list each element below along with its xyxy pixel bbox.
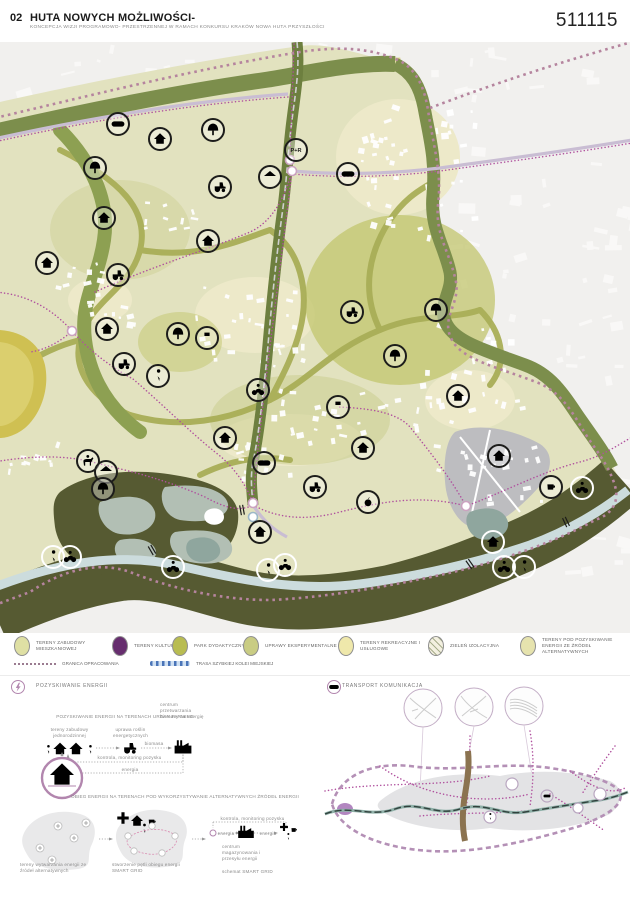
map-icon-house: [149, 128, 171, 150]
map-icon-house: [93, 207, 115, 229]
map-icon-house: [96, 318, 118, 340]
map-icon-house: [214, 427, 236, 449]
map-icon-tractor: [304, 476, 326, 498]
map-icon-gazebo: [259, 166, 281, 188]
legend-swatch: [14, 636, 30, 656]
map-icon-tractor: [341, 301, 363, 323]
legend-item: TERENY ZABUDOWY MIESZKANIOWEJ: [14, 636, 114, 656]
map-icon-house: [36, 252, 58, 274]
transport-section-icon: [328, 681, 341, 694]
legend-item: UPRAWY EKSPERYMENTALNE: [243, 636, 337, 656]
legend-item: TERENY POD POZYSKIWANIE ENERGII ZE ŹRÓDE…: [520, 636, 620, 656]
map-icon-tractor: [209, 176, 231, 198]
legend-swatch: [243, 636, 259, 656]
urban-farming-emblem: [42, 758, 82, 798]
map-icon-park-and-ride: P+R: [285, 139, 307, 161]
map-icon-house: [249, 521, 271, 543]
route-node: [68, 327, 77, 336]
grid-energy-in-label: energia: [210, 831, 242, 837]
map-svg: P+R: [0, 42, 630, 633]
map-icon-tree: [167, 323, 189, 345]
farming-node1-label: tereny zabudowy jednorodzinnej: [42, 727, 97, 739]
boundary-line-symbol: [14, 663, 56, 665]
energy-section-icon: [12, 681, 25, 694]
legend-swatch: [428, 636, 444, 656]
competition-board: 02 HUTA NOWYCH MOŻLIWOŚCI- KONCEPCJA WIZ…: [0, 0, 630, 900]
transport-section-title: TRANSPORT KOMUNIKACJA: [342, 683, 423, 690]
bottom-panels: POZYSKIWANIE ENERGII TRANSPORT KOMUNIKAC…: [0, 675, 630, 900]
flow-energy-label: energia: [100, 767, 160, 773]
farming-node2-label: uprawa roślin energetycznych: [103, 727, 158, 739]
map-icon-tree: [84, 157, 106, 179]
board-number: 02: [10, 12, 22, 24]
legend-item: TERENY KULTURY: [112, 636, 178, 656]
grid-energy-out-label: energia: [252, 831, 284, 837]
svg-text:P+R: P+R: [290, 148, 301, 154]
board-subtitle: KONCEPCJA WIZJI PROGRAMOWO- PRZESTRZENNE…: [30, 25, 325, 30]
map-icon-apple: [357, 491, 379, 513]
grid-stage3-label: schemat SMART GRID: [222, 869, 292, 875]
grid-stage1-label: tereny wytwarzania energii ze źródeł alt…: [20, 862, 100, 874]
legend-label: TRASA SZYBKIEJ KOLEI MIEJSKIEJ: [196, 661, 273, 666]
grid-stage2: [116, 810, 187, 868]
map-icon-walk: [147, 365, 169, 387]
grid-title: OBIEG ENERGII NA TERENACH POD WYKORZYSTY…: [60, 794, 310, 800]
map-icon-photo: [327, 396, 349, 418]
map-icon-tree: [384, 345, 406, 367]
map-icon-bus: [337, 163, 359, 185]
legend-swatch: [338, 636, 354, 656]
legend-swatch: [112, 636, 128, 656]
map-icon-house: [352, 437, 374, 459]
map-icon-bus: [253, 452, 275, 474]
entry-code: 511115: [556, 10, 618, 32]
legend-item: ZIELEŃ IZOLACYJNA: [428, 636, 499, 656]
transport-diagram-svg: [320, 676, 630, 900]
legend-swatch: [172, 636, 188, 656]
flow-control-label: kontrola, monitoring pozysku: [82, 755, 177, 761]
white-clearing: [204, 508, 224, 524]
map-icon-house: [197, 230, 219, 252]
transport-map: [325, 731, 628, 851]
route-node: [249, 513, 258, 522]
map-icon-tree: [92, 478, 114, 500]
legend-label: PARK DYDAKTYCZNY: [194, 643, 245, 649]
master-plan-map: P+R: [0, 42, 630, 633]
legend-item: TERENY REKREACYJNE I USŁUGOWE: [338, 636, 438, 656]
flow-biomass-label: biomasa: [138, 741, 170, 747]
map-icon-house: [447, 385, 469, 407]
board-title: HUTA NOWYCH MOŻLIWOŚCI-: [30, 12, 195, 24]
rail-line-symbol: [150, 661, 190, 666]
legend-rail-item: TRASA SZYBKIEJ KOLEI MIEJSKIEJ: [150, 661, 273, 666]
route-node: [288, 167, 297, 176]
map-icon-bus: [107, 113, 129, 135]
map-icon-bike: [247, 379, 269, 401]
grid-center-label: centrum magazynowania i przesyłu energii: [222, 844, 274, 862]
map-icon-tree: [425, 299, 447, 321]
map-icon-coffee: [540, 476, 562, 498]
grid-control-label: kontrola, monitoring pozysku: [205, 816, 300, 822]
legend-label: TERENY ZABUDOWY MIESZKANIOWEJ: [36, 640, 114, 651]
grid-stage2-label: stworzenie pętli obiegu energii SMART GR…: [112, 862, 194, 874]
farming-node3-label: centrum przetwarzania biomasy na energię: [160, 702, 206, 720]
legend-swatch: [520, 636, 536, 656]
route-node: [462, 502, 471, 511]
map-icon-house: [488, 445, 510, 467]
legend-label: ZIELEŃ IZOLACYJNA: [450, 643, 499, 649]
legend-label: TERENY REKREACYJNE I USŁUGOWE: [360, 640, 438, 651]
route-node: [249, 499, 258, 508]
bus-icon: [329, 685, 339, 689]
legend-boundary-item: GRANICA OPRACOWANIA: [14, 661, 119, 666]
energy-section-title: POZYSKIWANIE ENERGII: [36, 683, 108, 690]
map-icon-photo: [196, 327, 218, 349]
lightning-icon: [16, 683, 21, 692]
map-icon-tree: [202, 119, 224, 141]
legend-item: PARK DYDAKTYCZNY: [172, 636, 245, 656]
legend-label: GRANICA OPRACOWANIA: [62, 661, 119, 666]
header: 02 HUTA NOWYCH MOŻLIWOŚCI- KONCEPCJA WIZ…: [0, 0, 630, 42]
legend-label: UPRAWY EKSPERYMENTALNE: [265, 643, 337, 649]
legend-label: TERENY POD POZYSKIWANIE ENERGII ZE ŹRÓDE…: [542, 637, 620, 654]
map-icon-tractor: [113, 353, 135, 375]
map-icon-tractor: [107, 264, 129, 286]
legend: TERENY ZABUDOWY MIESZKANIOWEJ TERENY KUL…: [0, 633, 630, 675]
